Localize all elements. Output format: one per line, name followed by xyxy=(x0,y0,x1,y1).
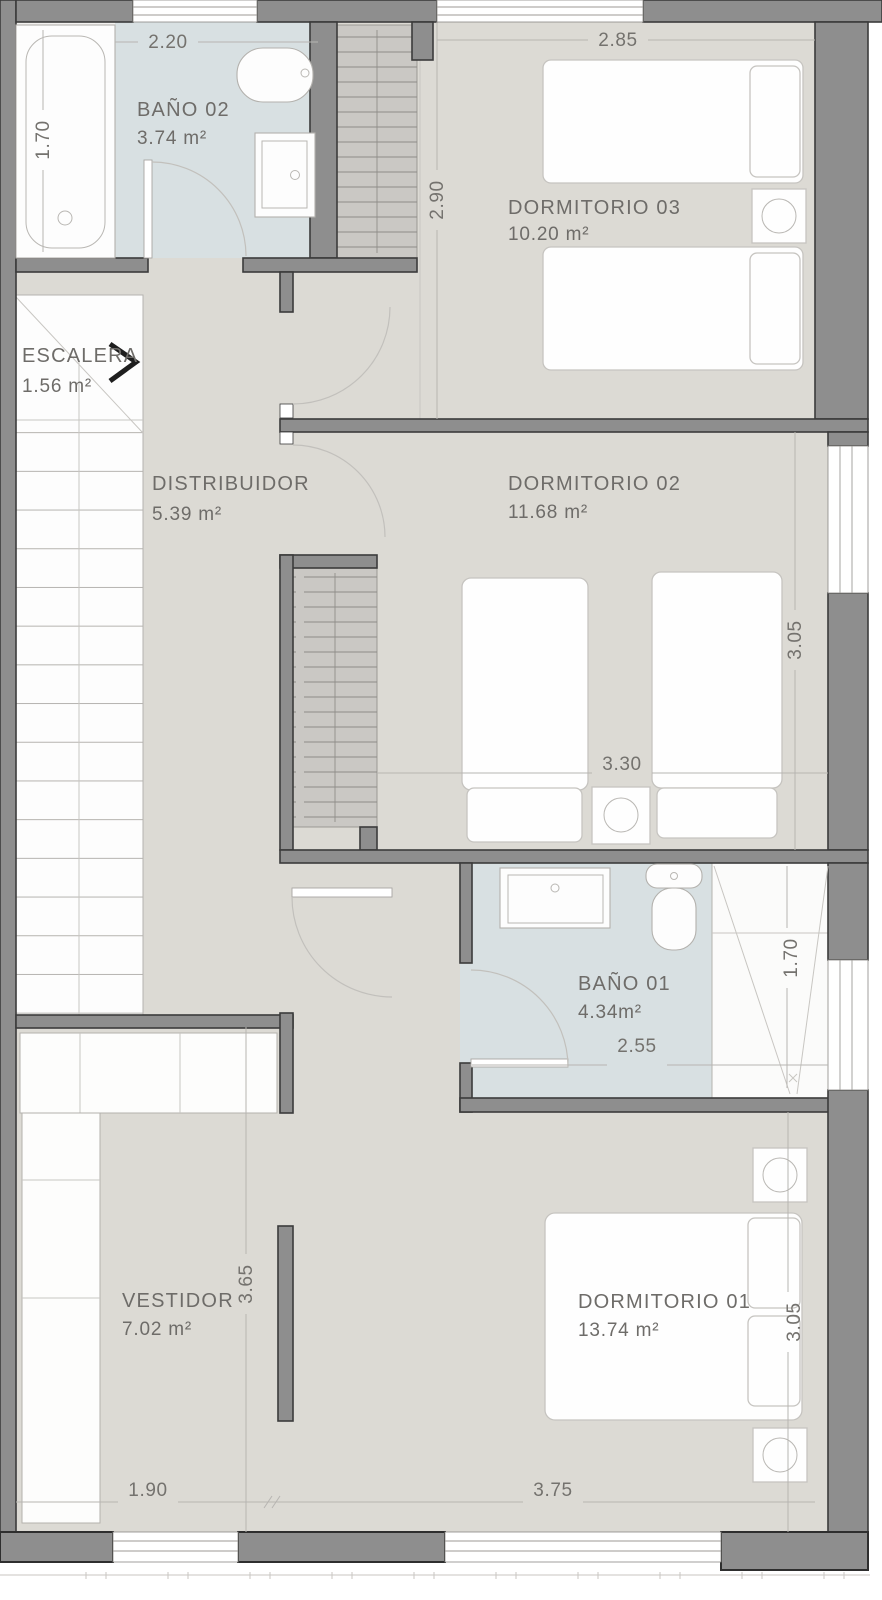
bed xyxy=(652,572,782,788)
wall-left-outer xyxy=(0,0,16,1532)
room-label-bano01: BAÑO 01 xyxy=(578,971,671,995)
room-area-dormitorio01: 13.74 m² xyxy=(578,1320,659,1341)
room-label-dormitorio02: DORMITORIO 02 xyxy=(508,473,681,495)
window-right-d02 xyxy=(828,446,868,593)
toilet-tank xyxy=(646,864,702,888)
room-label-distribuidor: DISTRIBUIDOR xyxy=(152,473,310,495)
window-top-bath xyxy=(133,0,257,22)
wall-d02-bottom xyxy=(280,850,868,863)
room-label-vestidor: VESTIDOR xyxy=(122,1290,234,1312)
window-bottom-vestidor xyxy=(113,1532,238,1562)
window-right-bano01 xyxy=(828,960,868,1090)
vestidor-closet-top xyxy=(20,1033,277,1113)
sink xyxy=(255,133,315,217)
nightstand xyxy=(753,1148,807,1202)
dim-bano01-shower-depth: 1.70 xyxy=(781,938,802,977)
wall-vestidor-partition xyxy=(278,1226,293,1421)
dim-dormitorio02-depth: 3.05 xyxy=(785,620,806,659)
door-jamb xyxy=(280,432,293,444)
wall-stub-distribuidor xyxy=(280,272,293,312)
bano01-door-leaf xyxy=(471,1059,568,1067)
pillow xyxy=(657,788,777,838)
room-label-bano02: BAÑO 02 xyxy=(137,97,230,121)
vestidor-closet-left xyxy=(22,1113,100,1523)
wall-bano02-bottom-left xyxy=(16,258,148,272)
dim-vestidor-width: 1.90 xyxy=(128,1480,167,1501)
nightstand xyxy=(752,189,806,243)
wall-wardrobe-stub xyxy=(360,827,377,850)
room-area-bano02: 3.74 m² xyxy=(137,128,207,149)
dim-vestidor-depth: 3.65 xyxy=(236,1264,257,1303)
toilet-bowl xyxy=(652,888,696,950)
wall-bottom-left xyxy=(0,1532,113,1562)
dim-dormitorio03-depth: 2.90 xyxy=(427,180,448,219)
room-label-dormitorio03: DORMITORIO 03 xyxy=(508,197,681,219)
wall-bottom-right xyxy=(721,1532,868,1570)
room-label-escalera: ESCALERA xyxy=(22,345,138,367)
floor-plan-page: BAÑO 02 3.74 m² DORMITORIO 03 10.20 m² E… xyxy=(0,0,882,1600)
wall-wardrobe-left xyxy=(280,555,293,850)
dim-dormitorio01-width: 3.75 xyxy=(533,1480,572,1501)
pillow xyxy=(750,253,800,364)
wall-top-2 xyxy=(257,0,437,22)
wall-top-3 xyxy=(643,0,882,22)
pillow xyxy=(467,788,582,842)
sink xyxy=(500,868,610,928)
room-area-distribuidor: 5.39 m² xyxy=(152,504,222,525)
scale-bar xyxy=(0,1572,870,1579)
room-label-dormitorio01: DORMITORIO 01 xyxy=(578,1291,751,1313)
bathtub xyxy=(16,25,115,258)
dim-dormitorio03-width: 2.85 xyxy=(598,30,637,51)
pillow xyxy=(748,1218,800,1308)
wall-wardrobe-top xyxy=(280,555,377,568)
wall-right-notch xyxy=(828,432,868,446)
wall-bano02-bottom-right xyxy=(243,258,417,272)
pillow xyxy=(750,66,800,177)
wall-right-d02 xyxy=(828,593,868,850)
room-area-bano01: 4.34m² xyxy=(578,1002,642,1023)
wall-top-1 xyxy=(16,0,133,22)
wall-bottom-mid xyxy=(238,1532,445,1562)
dim-bathtub-length: 1.70 xyxy=(33,120,54,159)
room-area-dormitorio03: 10.20 m² xyxy=(508,224,589,245)
wall-bano01-left-upper xyxy=(460,863,472,963)
room-area-dormitorio02: 11.68 m² xyxy=(508,502,588,523)
window-bottom-d01 xyxy=(445,1532,721,1562)
wall-vestidor-stub xyxy=(280,1013,293,1113)
wall-right-upper xyxy=(815,22,868,419)
wall-stairs-bottom xyxy=(16,1015,293,1028)
bed xyxy=(462,578,588,790)
wall-bano01-bottom xyxy=(460,1098,830,1112)
wall-closet-stub xyxy=(412,22,433,60)
wall-d03-d02 xyxy=(280,419,868,432)
room-area-escalera: 1.56 m² xyxy=(22,376,92,397)
nightstand xyxy=(753,1428,807,1482)
floor-plan-canvas: BAÑO 02 3.74 m² DORMITORIO 03 10.20 m² E… xyxy=(0,0,882,1600)
dim-dormitorio01-depth: 3.05 xyxy=(784,1302,805,1341)
dim-dormitorio02-bed-span: 3.30 xyxy=(602,754,641,775)
dim-bano01-width: 2.55 xyxy=(617,1036,656,1057)
wall-right-bano01 xyxy=(828,863,868,960)
bano02-door-leaf xyxy=(144,160,152,258)
dim-bano02-width: 2.20 xyxy=(148,32,187,53)
vestidor-door-leaf xyxy=(292,888,392,897)
room-area-vestidor: 7.02 m² xyxy=(122,1319,192,1340)
wall-right-lower xyxy=(828,1090,868,1532)
door-jamb xyxy=(280,404,293,418)
nightstand xyxy=(592,787,650,844)
window-top-d03 xyxy=(437,0,643,22)
